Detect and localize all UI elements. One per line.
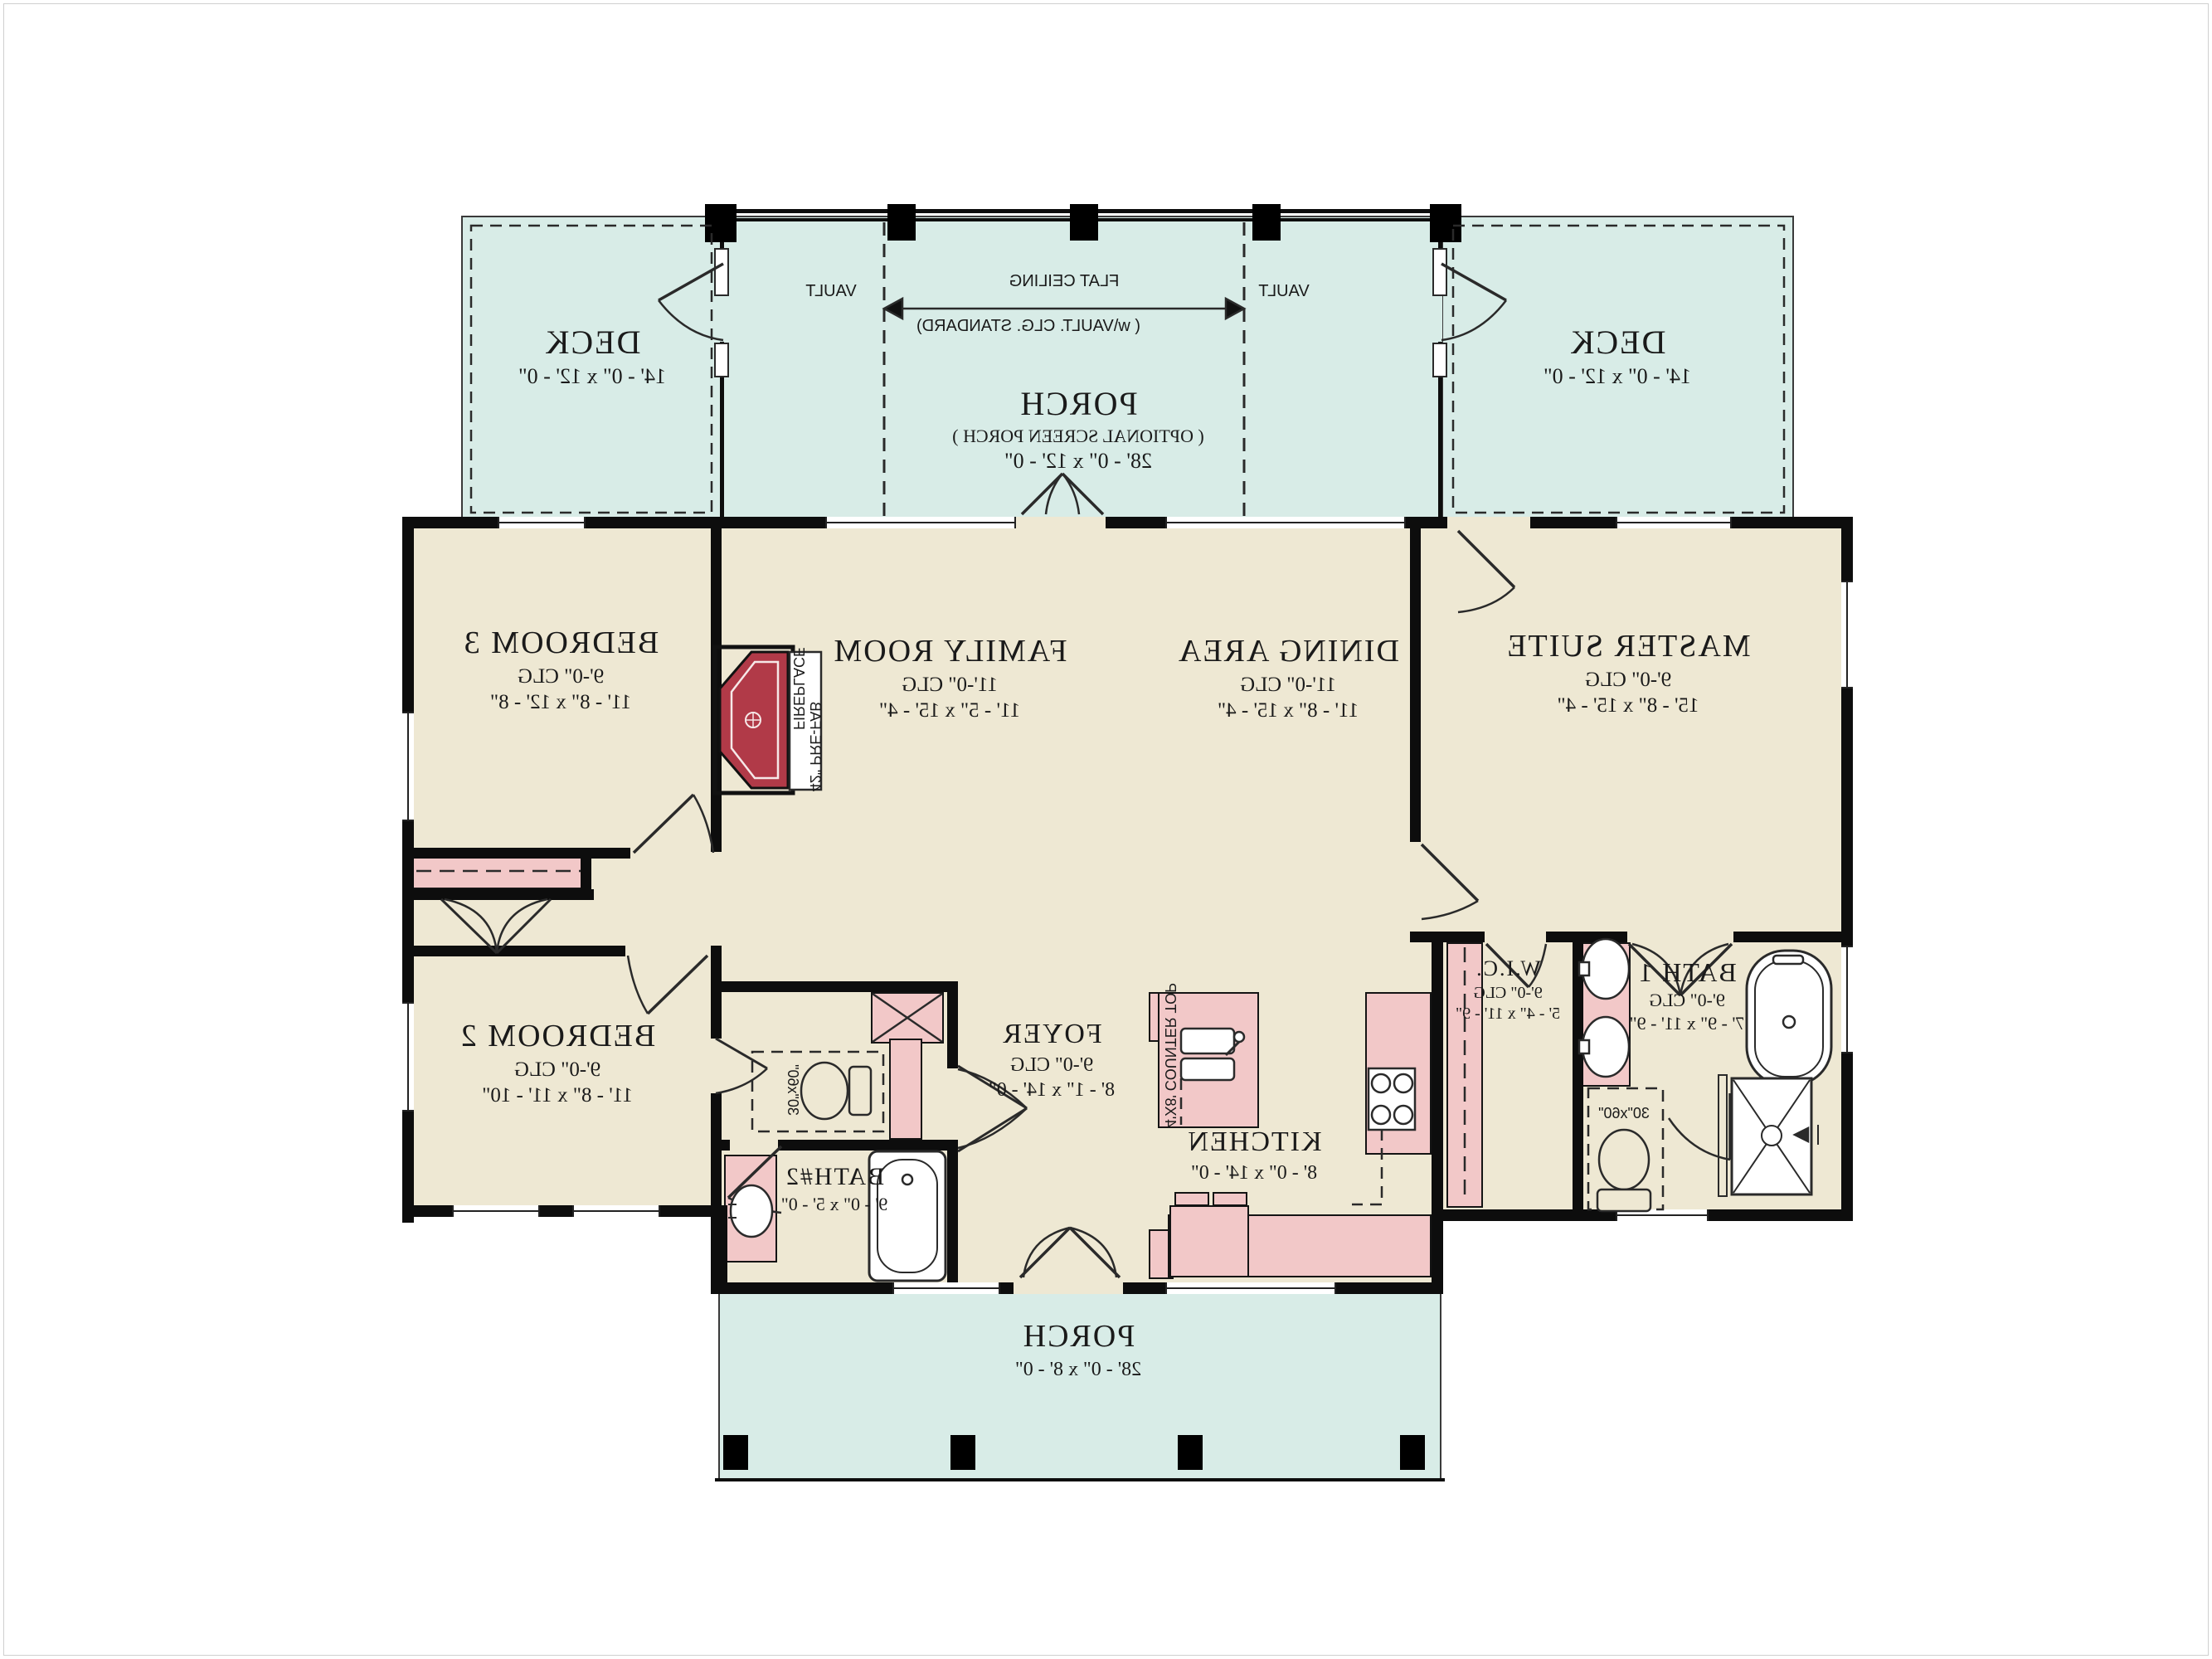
vault-standard-label: ( w\VAULT. CLG. STANDARD) xyxy=(916,317,1140,336)
kitchen-label: KITCHEN 8' - 0" x 14' - 0" xyxy=(1186,1125,1321,1185)
screen-frame xyxy=(715,249,728,295)
master-suite-label: MASTER SUITE 9'-0" CLG 15' - 8" x 15' - … xyxy=(1505,627,1750,718)
toilet-icon xyxy=(1597,1130,1650,1211)
shower-size-label-bath1: 30"x60" xyxy=(1598,1105,1650,1122)
bath1-label: BATH 1 9'-0" CLG 7' - 9" x 11' - 9" xyxy=(1630,956,1745,1034)
wic-label: W.I.C. 9'-0" CLG 5' - 4" x 11' - 9" xyxy=(1456,956,1560,1024)
fixtures-linework xyxy=(0,0,2212,1659)
deck-left-label: DECK 14' - 0" x 12' - 0" xyxy=(518,322,666,391)
foyer-label: FOYER 9'-0" CLG 8' - 1" x 14' - 0" xyxy=(989,1017,1115,1102)
deck-right-label: DECK 14' - 0" x 12' - 0" xyxy=(1544,322,1691,391)
fireplace-label-2: 42" PRE-FAB xyxy=(805,702,824,791)
kitchen-sink-icon xyxy=(1181,1029,1244,1080)
bedroom3-label: BEDROOM 3 9'-0" CLG 11' - 8" x 12' - 8" xyxy=(463,624,659,715)
shower-icon xyxy=(1719,1075,1818,1196)
arrow-head xyxy=(1226,299,1244,319)
sink-icon xyxy=(1579,939,1629,1077)
family-room-label: FAMILY ROOM 11'-0" CLG 11' - 5" x 15' - … xyxy=(832,632,1067,723)
vault-label-right: VAULT xyxy=(1258,282,1310,301)
screen-frame xyxy=(1433,249,1446,295)
flat-ceiling-label: FLAT CEILING xyxy=(1009,272,1120,291)
bathtub-icon xyxy=(1747,951,1831,1085)
toilet-icon xyxy=(801,1063,871,1119)
screen-frame xyxy=(715,343,728,377)
floor-plan-canvas: DECK 14' - 0" x 12' - 0" DECK 14' - 0" x… xyxy=(0,0,2212,1659)
screen-porch-label: PORCH ( OPTIONAL SCREEN PORCH ) 28' - 0"… xyxy=(952,383,1204,474)
arrow-head xyxy=(884,299,902,319)
front-porch-label: PORCH 28' - 0" x 8' - 0" xyxy=(1015,1317,1141,1382)
shower-size-label-bath2: 30"x60" xyxy=(783,1064,801,1116)
screen-frame xyxy=(1433,343,1446,377)
dining-area-label: DINING AREA 11'-0" CLG 11' - 8" x 15' - … xyxy=(1177,632,1399,723)
island-counter-label: 4'X8' COUNTER TOP xyxy=(1160,983,1179,1127)
vault-label-left: VAULT xyxy=(805,282,857,301)
range-icon xyxy=(1369,1068,1415,1130)
bath2-label: BATH#2 9' - 0" x 5' - 0" xyxy=(781,1161,888,1215)
bedroom2-label: BEDROOM 2 9'-0" CLG 11' - 8" x 11' - 10" xyxy=(459,1017,656,1108)
linen-x xyxy=(873,994,942,1042)
fireplace-label-1: FIREPLACE xyxy=(789,647,807,730)
